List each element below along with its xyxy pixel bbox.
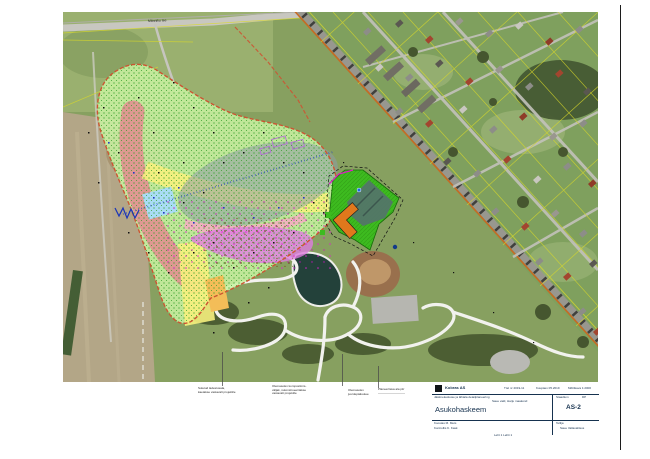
street-label: Männiku tee <box>148 18 167 23</box>
stage-value: DP <box>582 396 586 400</box>
map-annotation: Olemasolev kompostimis- väljak, rekonstr… <box>272 385 306 396</box>
parking-lot <box>371 295 419 324</box>
map-annotation: Planeeritava ala piir ————————— <box>378 388 405 395</box>
client-name: Saue Vallavalitsus <box>560 427 584 431</box>
meta-date: Kuupäev 05.2019 <box>536 387 560 391</box>
sheet-count-note: Leht 1 Lehti 1 <box>494 434 512 438</box>
meta-job-number: Töö nr 2019-11 <box>504 387 524 391</box>
annotation-line: ————————— <box>378 392 405 396</box>
project-name: Jäätmekeskuse ja lähiala detailplaneerin… <box>434 396 490 400</box>
title-block: Kobras AS Töö nr 2019-11 Kuupäev 05.2019… <box>432 383 599 445</box>
project-location: Saue vald, Harju maakond <box>492 400 527 404</box>
sheet-number: AS-2 <box>566 404 581 411</box>
stage-label: Staadium <box>556 396 569 400</box>
annotation-line: kaetakse vastavalt projektile <box>198 391 236 395</box>
annotation-line: vastavalt projektile <box>272 392 306 396</box>
checker-line: Kontrollis K. Kask <box>434 427 458 431</box>
sheet-title: Asukohaskeem <box>435 406 486 414</box>
annotation-line: juurdepääsutee <box>348 393 369 397</box>
site-plan-map: Männiku tee <box>63 12 598 382</box>
leader-line <box>342 354 343 386</box>
map-annotation: Suletud ladestusala, kaetakse vastavalt … <box>198 387 236 394</box>
company-name: Kobras AS <box>445 386 465 391</box>
marker-dot <box>357 188 361 192</box>
road-junction-pad <box>490 350 530 374</box>
page: Männiku tee Suletud ladestusala, kaetaks… <box>0 0 650 459</box>
map-annotation: Olemasolev juurdepääsutee <box>348 389 369 396</box>
map-canvas: Männiku tee <box>63 12 598 382</box>
leader-line <box>222 352 223 386</box>
meta-scale: Mõõtkava 1:2000 <box>568 387 591 391</box>
page-edge-line <box>620 5 621 450</box>
leader-line <box>378 366 379 388</box>
company-logo <box>435 385 442 392</box>
